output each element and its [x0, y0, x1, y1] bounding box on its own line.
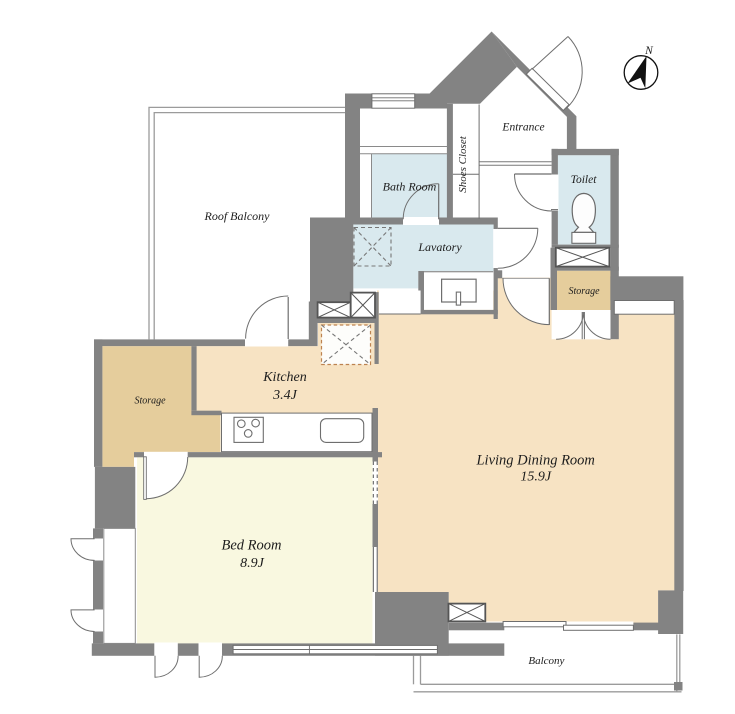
- svg-text:Shoes Closet: Shoes Closet: [457, 135, 469, 192]
- svg-text:Toilet: Toilet: [571, 174, 598, 186]
- svg-text:Roof Balcony: Roof Balcony: [204, 209, 271, 223]
- svg-text:Storage: Storage: [568, 286, 600, 297]
- svg-text:8.9J: 8.9J: [240, 556, 265, 571]
- svg-text:N: N: [644, 45, 654, 57]
- svg-text:3.4J: 3.4J: [272, 388, 298, 403]
- svg-text:Bed Room: Bed Room: [222, 538, 282, 554]
- svg-text:Entrance: Entrance: [501, 122, 544, 134]
- svg-text:Bath Room: Bath Room: [383, 180, 437, 194]
- svg-text:Lavatory: Lavatory: [417, 240, 462, 254]
- svg-text:Balcony: Balcony: [528, 655, 564, 667]
- svg-text:Kitchen: Kitchen: [262, 370, 307, 385]
- svg-text:15.9J: 15.9J: [520, 470, 552, 485]
- svg-text:Living Dining Room: Living Dining Room: [475, 453, 594, 469]
- svg-text:Storage: Storage: [134, 396, 166, 407]
